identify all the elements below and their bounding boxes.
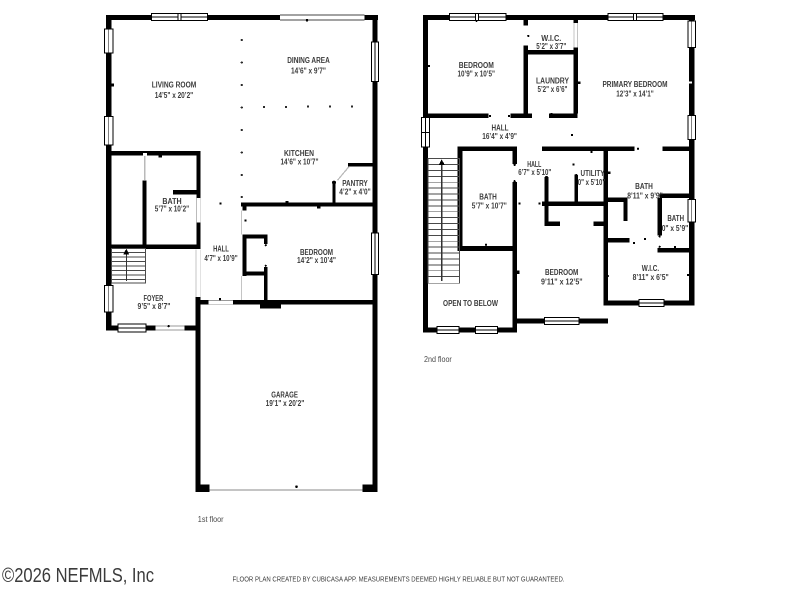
svg-text:8’11" x 9’9": 8’11" x 9’9" <box>627 191 663 200</box>
svg-text:1st floor: 1st floor <box>198 514 224 524</box>
svg-text:BATH: BATH <box>479 192 497 201</box>
svg-text:HALL: HALL <box>213 245 229 254</box>
svg-text:UTILITY: UTILITY <box>581 169 605 178</box>
svg-text:14’2" x 10’4": 14’2" x 10’4" <box>297 256 336 265</box>
svg-text:BATH: BATH <box>667 214 684 223</box>
svg-text:PRIMARY BEDROOM: PRIMARY BEDROOM <box>603 80 668 89</box>
svg-text:6’7" x 5’10": 6’7" x 5’10" <box>518 168 551 177</box>
svg-text:5’7" x 10’2": 5’7" x 10’2" <box>155 205 190 214</box>
svg-text:4’7" x 10’9": 4’7" x 10’9" <box>204 254 237 263</box>
svg-text:DINING AREA: DINING AREA <box>287 56 330 65</box>
svg-text:8’11" x 6’5": 8’11" x 6’5" <box>633 273 669 282</box>
svg-text:2nd floor: 2nd floor <box>424 354 452 364</box>
svg-text:9’5" x 8’7": 9’5" x 8’7" <box>138 302 171 311</box>
svg-text:©2026 NEFMLS, Inc: ©2026 NEFMLS, Inc <box>2 565 154 587</box>
svg-text:12’3" x 14’1": 12’3" x 14’1" <box>616 89 654 98</box>
svg-text:9’11" x 12’5": 9’11" x 12’5" <box>541 277 583 286</box>
svg-text:14’6" x 10’7": 14’6" x 10’7" <box>281 158 319 167</box>
svg-text:5’2" x 6’6": 5’2" x 6’6" <box>538 85 568 94</box>
svg-text:19’1" x 20’2": 19’1" x 20’2" <box>266 399 305 408</box>
svg-text:BATH: BATH <box>635 182 653 191</box>
svg-text:FLOOR PLAN CREATED BY CUBICASA: FLOOR PLAN CREATED BY CUBICASA APP. MEAS… <box>233 575 565 584</box>
svg-text:5’7" x 10’7": 5’7" x 10’7" <box>472 202 507 211</box>
svg-text:10’9" x 10’5": 10’9" x 10’5" <box>458 70 496 79</box>
svg-text:BEDROOM: BEDROOM <box>545 268 579 277</box>
svg-text:5’2" x 3’7": 5’2" x 3’7" <box>536 42 566 51</box>
svg-text:14’6" x 9’7": 14’6" x 9’7" <box>291 67 326 76</box>
svg-text:0" x 5’10": 0" x 5’10" <box>578 178 606 187</box>
svg-text:4’2" x 4’0": 4’2" x 4’0" <box>339 188 371 197</box>
svg-text:16’4" x 4’9": 16’4" x 4’9" <box>482 132 517 141</box>
svg-text:OPEN TO BELOW: OPEN TO BELOW <box>443 299 498 308</box>
svg-text:LIVING ROOM: LIVING ROOM <box>152 81 197 90</box>
svg-text:14’5" x 20’2": 14’5" x 20’2" <box>155 91 194 100</box>
svg-text:0" x 5’9": 0" x 5’9" <box>662 224 689 233</box>
svg-text:W.I.C.: W.I.C. <box>642 264 659 273</box>
